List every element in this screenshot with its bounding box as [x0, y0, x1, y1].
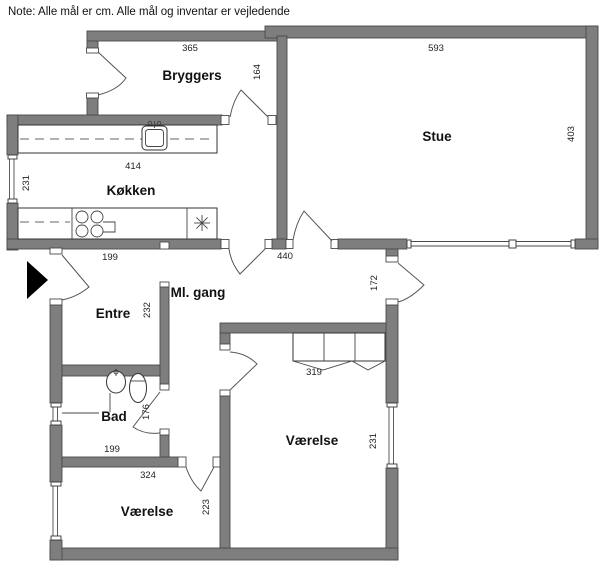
dishwasher-icon: [194, 215, 210, 231]
room-label-stue: Stue: [422, 129, 452, 144]
wall-bad-south: [62, 457, 178, 467]
window-east-vaerelse: [386, 403, 398, 468]
jamb: [160, 282, 169, 287]
wall-east-3: [386, 468, 398, 560]
jamb: [213, 457, 220, 467]
wall-entre-gang-divider: [160, 287, 169, 384]
dim-vaerelse-sw-depth: 223: [201, 499, 212, 515]
closet-outline: [293, 333, 385, 361]
jamb: [220, 344, 230, 350]
room-label-ml-gang: Ml. gang: [171, 285, 226, 300]
jamb: [386, 256, 398, 262]
toilet-icon: [130, 374, 147, 403]
dim-entre-depth: 232: [142, 302, 153, 318]
wall-east-2: [386, 305, 398, 403]
room-label-kokken: Køkken: [107, 183, 156, 198]
door-main-entrance: [62, 255, 89, 300]
dim-bad-depth: 176: [141, 404, 152, 420]
wall-stub-gang: [272, 239, 286, 249]
dim-stue-width: 593: [428, 43, 444, 54]
wall-south: [50, 548, 398, 560]
wall-stue-south-corner: [575, 239, 598, 249]
floor-plan: Note: Alle mål er cm. Alle mål og invent…: [0, 0, 600, 575]
room-label-vaerelse-se: Værelse: [286, 433, 339, 448]
labels: Note: Alle mål er cm. Alle mål og invent…: [8, 6, 577, 519]
jamb: [87, 93, 99, 98]
dim-bryggers-width: 365: [182, 43, 198, 54]
dim-vaerelse-sw-width: 324: [140, 470, 156, 481]
dim-stue-depth: 403: [566, 126, 577, 142]
entrance-arrow-icon: [27, 261, 48, 299]
closet: [293, 333, 385, 370]
door-gang-exterior: [398, 263, 424, 302]
door-bryggers-kokken: [230, 90, 268, 117]
wall-west-3: [50, 540, 62, 560]
door-kokken-gang: [229, 249, 265, 274]
dim-gang-east: 172: [369, 275, 380, 291]
wall-bedroom-divider-top: [220, 333, 230, 344]
window-west-bad: [50, 403, 62, 425]
wall-gang-south: [220, 323, 386, 333]
jamb: [50, 299, 62, 305]
room-label-vaerelse-sw: Værelse: [121, 504, 174, 519]
walls: [7, 26, 598, 560]
wall-kokken-west-upper: [7, 115, 18, 155]
wall-bedroom-divider: [220, 396, 230, 548]
jamb: [160, 384, 169, 390]
room-label-bryggers: Bryggers: [162, 68, 221, 83]
door-vaerelse-se: [230, 352, 257, 390]
dim-bryggers-depth: 164: [252, 64, 263, 80]
wall-bad-east-stub: [160, 435, 169, 457]
jamb: [265, 240, 272, 249]
jamb: [286, 240, 293, 249]
jamb: [50, 248, 62, 254]
jamb: [386, 299, 398, 305]
jamb: [178, 457, 186, 467]
wall-bryggers-top: [87, 31, 277, 41]
dim-bad-width: 199: [104, 444, 120, 455]
dim-entre-width: 199: [102, 252, 118, 263]
room-label-bad: Bad: [101, 409, 127, 424]
jamb: [221, 240, 229, 249]
door-gang-stue: [293, 211, 332, 241]
door-vaerelse-sw: [186, 467, 214, 491]
window-kokken-west: [7, 155, 18, 203]
wall-kokken-south: [7, 239, 221, 249]
dim-kokken-width: 414: [125, 161, 141, 172]
jamb: [87, 48, 99, 53]
wall-west-1: [50, 305, 62, 403]
wall-stue-south-west: [338, 239, 407, 249]
kitchen-fixtures: [18, 121, 217, 239]
wall-kokken-stue-divider: [277, 36, 287, 243]
wall-east-1: [386, 249, 398, 256]
wall-west-2: [50, 425, 62, 482]
door-bryggers-exterior: [98, 52, 126, 95]
room-label-entre: Entre: [96, 306, 131, 321]
dim-vaerelse-se-depth: 231: [368, 433, 379, 449]
dim-kokken-depth: 231: [21, 175, 32, 191]
jamb: [221, 116, 229, 125]
dim-vaerelse-se-closet: 319: [306, 367, 322, 378]
window-west-vaerelse: [50, 482, 62, 540]
dim-gang-width: 440: [277, 251, 293, 262]
wall-kokken-north: [7, 115, 222, 125]
jamb: [160, 242, 169, 249]
jamb: [220, 390, 230, 396]
wall-stue-east: [586, 26, 598, 247]
wall-stue-top: [265, 26, 598, 38]
window-stue-south: [407, 239, 575, 249]
jamb: [268, 116, 276, 125]
plan-note: Note: Alle mål er cm. Alle mål og invent…: [8, 6, 290, 18]
wall-bryggers-west-lower: [87, 96, 98, 117]
jamb: [160, 429, 169, 435]
